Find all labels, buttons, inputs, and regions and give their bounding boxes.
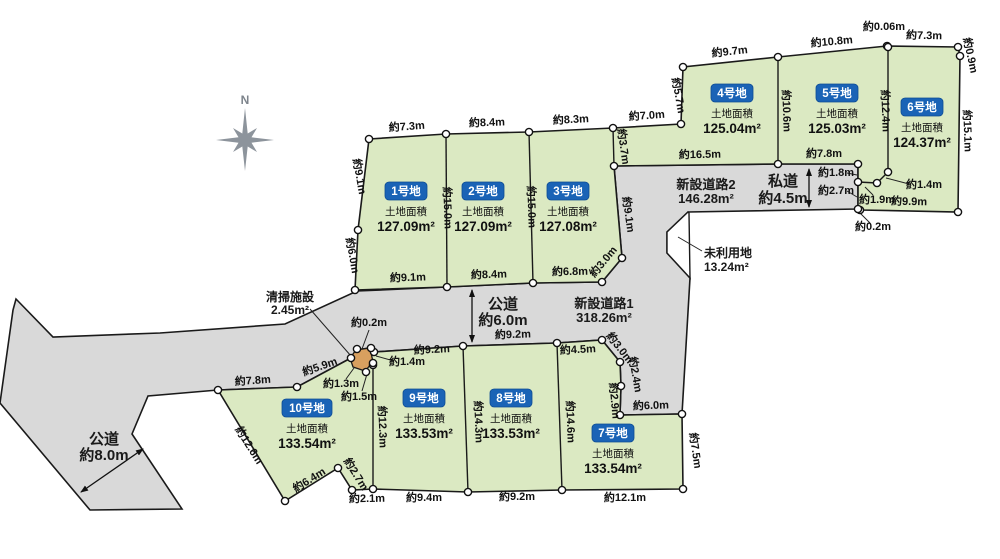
dimension-label: 約0.2m xyxy=(351,315,387,329)
plot-number-text: 9号地 xyxy=(409,391,439,405)
land-area-value: 133.53m² xyxy=(482,426,540,441)
boundary-vertex xyxy=(365,135,372,142)
land-area-value: 127.08m² xyxy=(539,219,597,234)
site-plan-page: N 約7.3m約8.4m約8.3m約7.0m約9.7m約10.8m約0.06m約… xyxy=(0,0,1000,559)
dimension-label: 約14.6m xyxy=(563,401,578,444)
boundary-vertex xyxy=(214,386,221,393)
new-road-2-label-line: 146.28m² xyxy=(678,191,734,206)
land-area-caption: 土地面積 xyxy=(403,412,445,425)
dimension-label: 約1.3m xyxy=(323,376,359,390)
boundary-vertex xyxy=(351,286,358,293)
cleaning-facility-label-line: 2.45m² xyxy=(271,303,309,317)
land-area-caption: 土地面積 xyxy=(462,205,504,218)
boundary-vertex xyxy=(854,178,861,185)
boundary-vertex xyxy=(618,254,625,261)
compass-north-label: N xyxy=(241,93,250,107)
boundary-vertex xyxy=(679,485,686,492)
plot-9-label-group: 9号地土地面積133.53m² xyxy=(395,389,453,441)
land-area-caption: 土地面積 xyxy=(711,107,753,120)
plot-number-text: 8号地 xyxy=(496,391,526,405)
boundary-vertex xyxy=(774,160,781,167)
land-area-value: 133.54m² xyxy=(278,436,336,451)
land-area-caption: 土地面積 xyxy=(385,205,427,218)
dimension-label: 約7.5m xyxy=(687,432,706,470)
private-road-label-line: 約4.5m xyxy=(758,189,807,207)
dimension-label: 約1.5m xyxy=(341,389,377,403)
dimension-label: 約8.4m xyxy=(469,114,506,129)
public-road-6m-label-line: 公道 xyxy=(488,295,518,313)
boundary-vertex xyxy=(610,162,617,169)
boundary-vertex xyxy=(354,226,361,233)
dimension-label: 約0.06m xyxy=(863,19,905,33)
land-area-caption: 土地面積 xyxy=(901,121,943,134)
boundary-vertex xyxy=(443,283,450,290)
land-area-value: 125.03m² xyxy=(808,121,866,136)
public-road-8m-label-line: 約8.0m xyxy=(79,446,128,464)
land-area-value: 133.53m² xyxy=(395,426,453,441)
land-area-value: 125.04m² xyxy=(703,121,761,136)
dimension-label: 約1.4m xyxy=(389,354,425,368)
dimension-label: 約8.3m xyxy=(552,111,589,127)
dimension-label: 約6.8m xyxy=(552,264,589,279)
unused-land-label-line: 未利用地 xyxy=(703,245,752,260)
boundary-vertex xyxy=(598,278,605,285)
plot-7-label-group: 7号地土地面積133.54m² xyxy=(584,424,642,476)
plot-6-label-group: 6号地土地面積124.37m² xyxy=(893,98,951,150)
land-area-caption: 土地面積 xyxy=(816,107,858,120)
cleaning-facility-label-line: 清掃施設 xyxy=(266,289,315,304)
dimension-label: 約7.0m xyxy=(628,107,665,123)
plot-number-text: 1号地 xyxy=(391,184,421,198)
land-area-caption: 土地面積 xyxy=(592,447,634,460)
plot-number-text: 10号地 xyxy=(289,401,325,415)
public-road-6m-label-line: 約6.0m xyxy=(478,311,527,329)
boundary-vertex xyxy=(353,345,360,352)
private-road-label-line: 私道 xyxy=(767,172,798,190)
boundary-vertex xyxy=(954,43,961,50)
boundary-vertex xyxy=(884,168,891,175)
dimension-label: 約10.8m xyxy=(810,32,853,50)
dimension-label: 約2.7m xyxy=(818,183,854,197)
plot-2-label-group: 2号地土地面積127.09m² xyxy=(454,182,512,234)
dimension-label: 約15.1m xyxy=(960,110,975,153)
boundary-vertex xyxy=(525,128,532,135)
plot-number-text: 2号地 xyxy=(468,184,498,198)
boundary-vertex xyxy=(956,52,963,59)
boundary-vertex xyxy=(679,63,686,70)
boundary-vertex xyxy=(369,359,376,366)
dimension-label: 約7.3m xyxy=(388,118,425,134)
land-area-caption: 土地面積 xyxy=(286,422,328,435)
new-road-1-label-line: 新設道路1 xyxy=(574,296,633,311)
boundary-vertex xyxy=(293,383,300,390)
plot-10-label-group: 10号地土地面積133.54m² xyxy=(278,399,336,451)
dimension-label: 約10.6m xyxy=(779,90,794,133)
boundary-vertex xyxy=(774,53,781,60)
boundary-vertex xyxy=(884,43,891,50)
boundary-vertex xyxy=(281,497,288,504)
boundary-vertex xyxy=(873,179,880,186)
public-road-8m-label-line: 公道 xyxy=(89,430,119,448)
land-area-caption: 土地面積 xyxy=(547,205,589,218)
plot-number-text: 6号地 xyxy=(907,100,937,114)
dimension-label: 約7.3m xyxy=(906,28,943,43)
dimension-label: 約9.2m xyxy=(499,489,535,503)
site-plan-svg: N 約7.3m約8.4m約8.3m約7.0m約9.7m約10.8m約0.06m約… xyxy=(0,0,1000,559)
dimension-label: 約0.2m xyxy=(855,219,891,233)
plot-number-text: 7号地 xyxy=(598,426,628,440)
dimension-label: 約9.7m xyxy=(711,42,749,60)
new-road-1-label-line: 318.26m² xyxy=(576,310,632,325)
land-area-value: 133.54m² xyxy=(584,461,642,476)
plot-number-text: 5号地 xyxy=(822,86,852,100)
dimension-label: 約9.4m xyxy=(406,490,442,504)
plot-number-text: 3号地 xyxy=(553,184,583,198)
dimension-label: 約2.1m xyxy=(349,491,386,506)
compass: N xyxy=(216,93,274,171)
boundary-vertex xyxy=(369,485,376,492)
land-area-value: 124.37m² xyxy=(893,135,951,150)
boundary-vertex xyxy=(442,130,449,137)
boundary-vertex xyxy=(347,354,354,361)
boundary-vertex xyxy=(558,486,565,493)
boundary-vertex xyxy=(854,160,861,167)
plot-8-label-group: 8号地土地面積133.53m² xyxy=(482,389,540,441)
boundary-vertex xyxy=(678,410,685,417)
boundary-vertex xyxy=(464,488,471,495)
dimension-label: 約12.3m xyxy=(375,406,390,449)
plot-3-label-group: 3号地土地面積127.08m² xyxy=(539,182,597,234)
boundary-vertex xyxy=(362,368,369,375)
land-area-caption: 土地面積 xyxy=(490,412,532,425)
dimension-label: 約6.0m xyxy=(633,397,670,412)
dimension-label: 約1.8m xyxy=(818,165,854,179)
boundary-vertex xyxy=(854,205,861,212)
new-road-2-label-line: 新設道路2 xyxy=(676,177,735,192)
boundary-vertex xyxy=(677,120,684,127)
land-area-value: 127.09m² xyxy=(454,219,512,234)
unused-land-label-line: 13.24m² xyxy=(704,260,749,274)
boundary-vertex xyxy=(367,344,374,351)
dimension-label: 約16.5m xyxy=(679,147,722,162)
dimension-label: 約12.1m xyxy=(604,490,646,504)
plot-1-label-group: 1号地土地面積127.09m² xyxy=(377,182,435,234)
dimension-label: 約9.1m xyxy=(390,269,427,284)
boundary-vertex xyxy=(459,342,466,349)
dimension-label: 約15.0m xyxy=(524,186,539,229)
dimension-label: 約8.4m xyxy=(471,266,508,281)
boundary-vertex xyxy=(334,464,341,471)
compass-star-icon xyxy=(216,108,274,171)
dimension-label: 約9.9m xyxy=(891,194,928,209)
plot-number-text: 4号地 xyxy=(717,86,747,100)
plot-4-label-group: 4号地土地面積125.04m² xyxy=(703,84,761,136)
dimension-label: 約12.4m xyxy=(878,90,893,133)
boundary-vertex xyxy=(954,208,961,215)
land-area-value: 127.09m² xyxy=(377,219,435,234)
boundary-vertex xyxy=(529,279,536,286)
dimension-label: 約1.4m xyxy=(906,177,942,191)
dimension-label: 約7.8m xyxy=(806,146,842,160)
plot-5-label-group: 5号地土地面積125.03m² xyxy=(808,84,866,136)
dimension-label: 約1.9m xyxy=(859,192,895,206)
